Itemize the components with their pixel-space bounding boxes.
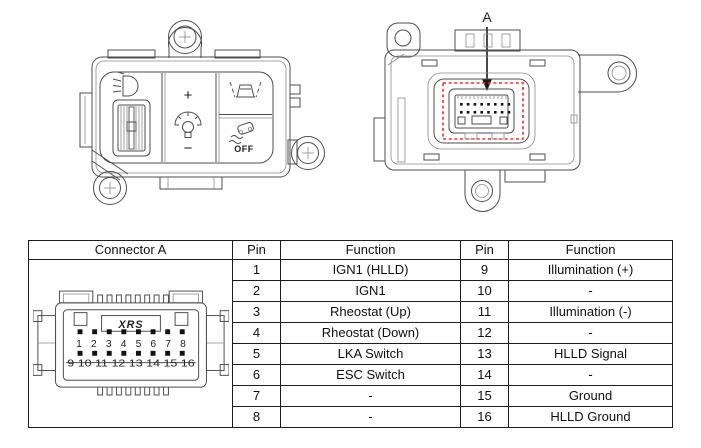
side-tab-left <box>80 93 92 147</box>
side-tab-right-upper <box>290 85 300 94</box>
function-cell-right: Illumination (+) <box>509 260 673 281</box>
function-cell-right: - <box>509 323 673 344</box>
function-cell-left: ESC Switch <box>281 365 461 386</box>
function-cell-right: Ground <box>509 386 673 407</box>
rear-body-inner-outline <box>391 56 574 164</box>
rear-view-figure: A <box>372 3 662 215</box>
bottom-tab <box>160 177 222 189</box>
function-cell-right: HLLD Ground <box>509 407 673 428</box>
pin-cell-right: 9 <box>461 260 509 281</box>
pin-cell-left: 3 <box>233 302 281 323</box>
front-view-drawing: + − <box>58 10 328 210</box>
pin-cell-right: 13 <box>461 344 509 365</box>
pin-numbers-top: 1 2 3 4 5 6 7 8 <box>76 338 186 349</box>
lka-switch-icon[interactable] <box>230 82 261 97</box>
function-cell-left: - <box>281 407 461 428</box>
pin-cell-left: 1 <box>233 260 281 281</box>
rear-rib <box>398 98 405 162</box>
connector-notch-left <box>74 312 87 325</box>
rheostat-minus: − <box>184 140 193 157</box>
pin-header-left: Pin <box>233 241 281 260</box>
function-cell-right: Illumination (-) <box>509 302 673 323</box>
pin-cell-left: 7 <box>233 386 281 407</box>
rheostat-dimmer-icon[interactable] <box>175 112 201 138</box>
connector-a-drawing: XRS 1 2 3 4 5 6 7 8 <box>33 288 229 400</box>
pinout-row: XRS 1 2 3 4 5 6 7 8 <box>29 260 673 281</box>
pin-cell-left: 5 <box>233 344 281 365</box>
rear-slot <box>424 154 439 160</box>
pin-numbers-bottom: 9 10 11 12 13 14 15 16 <box>67 358 195 369</box>
connector-pins-rear <box>460 103 510 114</box>
function-cell-right: - <box>509 281 673 302</box>
front-view-figure: + − <box>58 10 328 210</box>
connector-pins-bottom <box>77 350 184 355</box>
connector-notch-right <box>175 312 188 325</box>
side-tab-right-lower <box>290 98 300 107</box>
page: + − <box>0 0 701 448</box>
function-cell-right: HLLD Signal <box>509 344 673 365</box>
function-cell-left: Rheostat (Down) <box>281 323 461 344</box>
top-mount <box>169 21 202 59</box>
function-cell-left: - <box>281 386 461 407</box>
pin-cell-left: 2 <box>233 281 281 302</box>
connector-bracket-left <box>33 310 56 375</box>
pin-cell-right: 12 <box>461 323 509 344</box>
headlight-leveling-icon <box>113 72 138 96</box>
rear-slot <box>422 60 437 66</box>
leveling-thumbwheel[interactable] <box>113 100 150 156</box>
rear-slot <box>530 60 545 66</box>
pin-cell-right: 14 <box>461 365 509 386</box>
connector-top-tabs <box>97 295 168 303</box>
front-body-outline <box>92 57 290 177</box>
rheostat-plus: + <box>184 87 193 104</box>
pin-cell-left: 6 <box>233 365 281 386</box>
rear-body-outline <box>385 50 580 170</box>
pin-cell-right: 15 <box>461 386 509 407</box>
rear-ear-top-left <box>387 23 420 57</box>
pin-cell-right: 11 <box>461 302 509 323</box>
pin-cell-left: 8 <box>233 407 281 428</box>
function-cell-left: Rheostat (Up) <box>281 302 461 323</box>
pinout-header-row: Connector A Pin Function Pin Function <box>29 241 673 260</box>
function-cell-left: IGN1 (HLLD) <box>281 260 461 281</box>
rear-tab-left <box>374 118 385 161</box>
function-cell-left: LKA Switch <box>281 344 461 365</box>
function-cell-left: IGN1 <box>281 281 461 302</box>
bottom-left-mount <box>92 150 128 205</box>
connector-bottom-tabs <box>97 387 168 395</box>
pinout-table: Connector A Pin Function Pin Function <box>28 240 673 428</box>
pin-cell-right: 10 <box>461 281 509 302</box>
callout-arrow <box>482 27 492 91</box>
connector-bracket-right <box>206 310 229 375</box>
pin-cell-left: 4 <box>233 323 281 344</box>
right-mount <box>288 137 325 170</box>
function-header-right: Function <box>509 241 673 260</box>
rear-ear-right <box>578 55 637 92</box>
rear-tab-bottom <box>505 170 545 182</box>
esc-off-label: OFF <box>234 144 254 154</box>
pin-header-right: Pin <box>461 241 509 260</box>
connector-a-rear <box>449 89 514 139</box>
function-header-left: Function <box>281 241 461 260</box>
connector-a-drawing-cell: XRS 1 2 3 4 5 6 7 8 <box>29 260 233 428</box>
connector-a-callout: A <box>482 9 492 25</box>
rear-view-drawing: A <box>372 3 662 215</box>
pin-cell-right: 16 <box>461 407 509 428</box>
connector-a-header: Connector A <box>29 241 233 260</box>
connector-brand-label: XRS <box>117 318 143 330</box>
esc-off-switch-icon[interactable]: OFF <box>229 122 254 154</box>
function-cell-right: - <box>509 365 673 386</box>
rear-ear-bottom <box>465 170 500 212</box>
rear-slot <box>530 154 545 160</box>
